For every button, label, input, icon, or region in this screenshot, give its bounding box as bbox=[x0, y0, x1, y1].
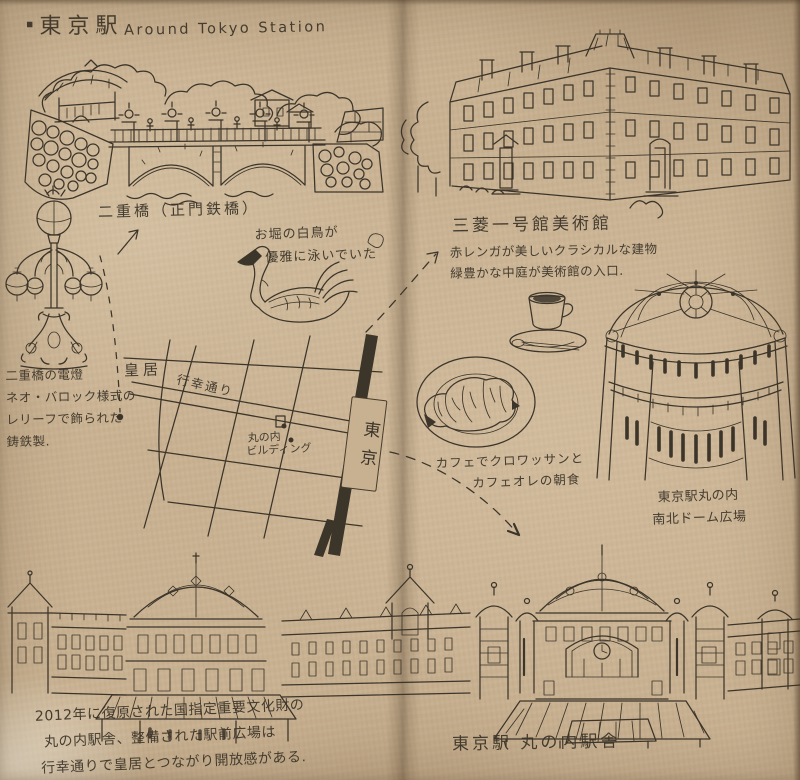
page-edge-top bbox=[0, 0, 800, 5]
map-label-imperial-palace: 皇居 bbox=[124, 359, 163, 381]
bridge-caption: 二重橋（正門鉄橋） bbox=[98, 198, 260, 222]
dome-label-line2: 南北ドーム広場 bbox=[652, 506, 747, 531]
cafe-note: カフェでクロワッサンと カフェオレの朝食 bbox=[435, 447, 585, 494]
lamp-note-line2: ネオ・バロック様式の bbox=[6, 385, 136, 409]
railway-continuation bbox=[314, 519, 336, 557]
station-restoration-note: 2012年に復原された国指定重要文化財の 丸の内駅舎、整備された駅前広場は 行幸… bbox=[34, 692, 307, 780]
museum-title: 三菱一号館美術館 bbox=[452, 213, 612, 239]
lamp-note-line1: 二重橋の電燈 bbox=[5, 363, 135, 387]
dome-label: 東京駅丸の内 南北ドーム広場 bbox=[657, 484, 747, 531]
map-label-marunouchi-building: 丸の内 ビルディング bbox=[247, 428, 312, 457]
lamp-note: 二重橋の電燈 ネオ・バロック様式の レリーフで飾られた 鋳鉄製. bbox=[5, 363, 137, 453]
dome-label-line1: 東京駅丸の内 bbox=[657, 484, 746, 509]
lamp-note-line4: 鋳鉄製. bbox=[6, 429, 136, 453]
museum-note: 赤レンガが美しいクラシカルな建物 緑豊かな中庭が美術館の入口. bbox=[450, 238, 658, 284]
swan-note-line2: 優雅に泳いでいた bbox=[265, 243, 377, 270]
swan-note: お堀の白鳥が 優雅に泳いでいた bbox=[254, 220, 377, 270]
museum-note-line2: 緑豊かな中庭が美術館の入口. bbox=[450, 259, 658, 284]
page-edge-right bbox=[793, 0, 800, 780]
station-caption: 東京駅 丸の内駅舎 bbox=[452, 731, 621, 757]
cafe-note-line2: カフェオレの朝食 bbox=[472, 468, 585, 493]
bridge-caption-arrow bbox=[118, 230, 138, 254]
museum-note-line1: 赤レンガが美しいクラシカルな建物 bbox=[450, 238, 658, 263]
lamp-note-line3: レリーフで飾られた bbox=[6, 407, 136, 431]
sketchbook-page: ▪東京駅 Around Tokyo Station bbox=[0, 0, 800, 780]
